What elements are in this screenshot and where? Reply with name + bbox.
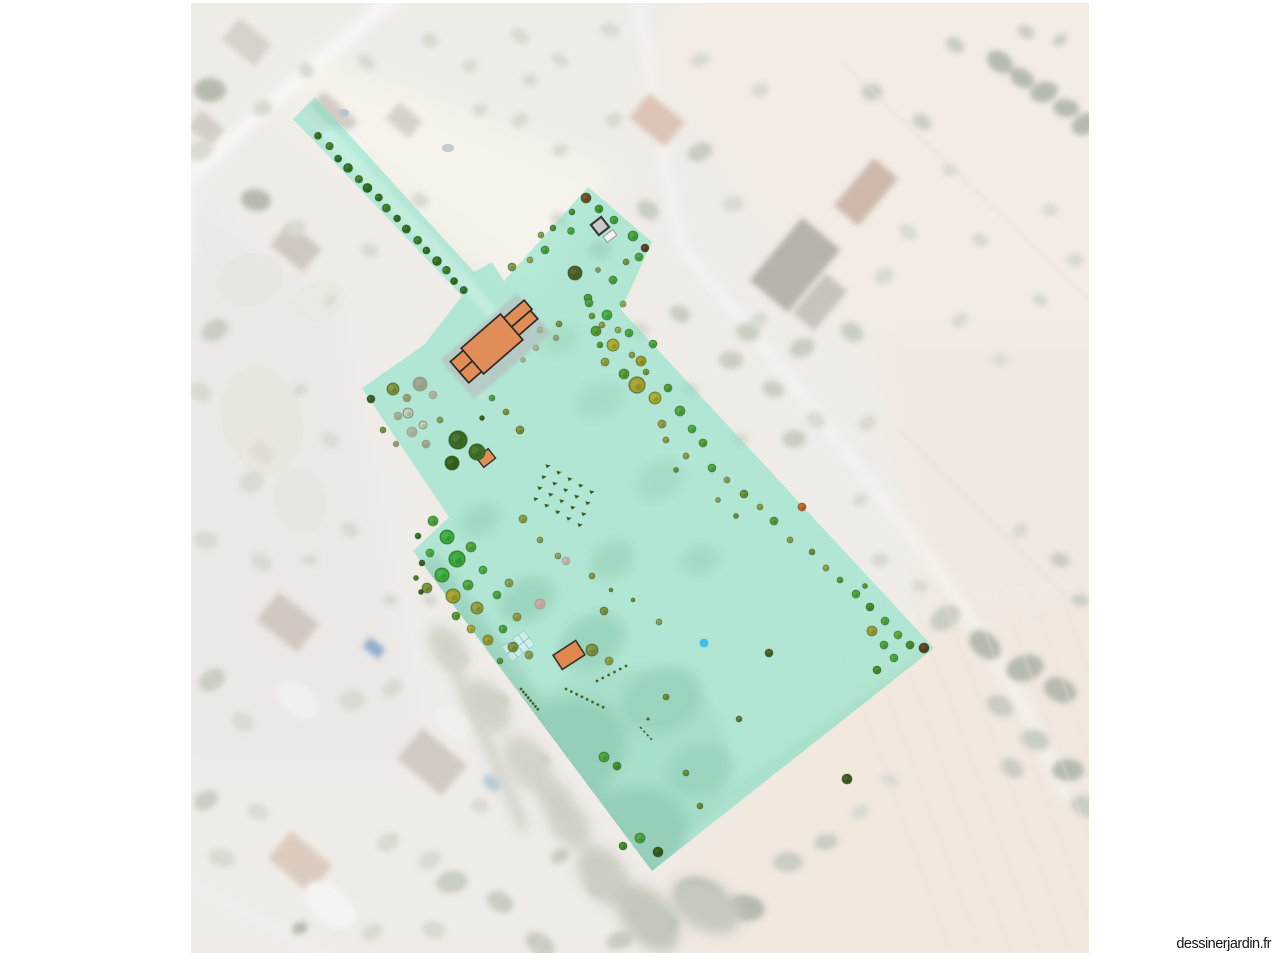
svg-text:dessinerjardin.fr: dessinerjardin.fr (1176, 936, 1271, 952)
